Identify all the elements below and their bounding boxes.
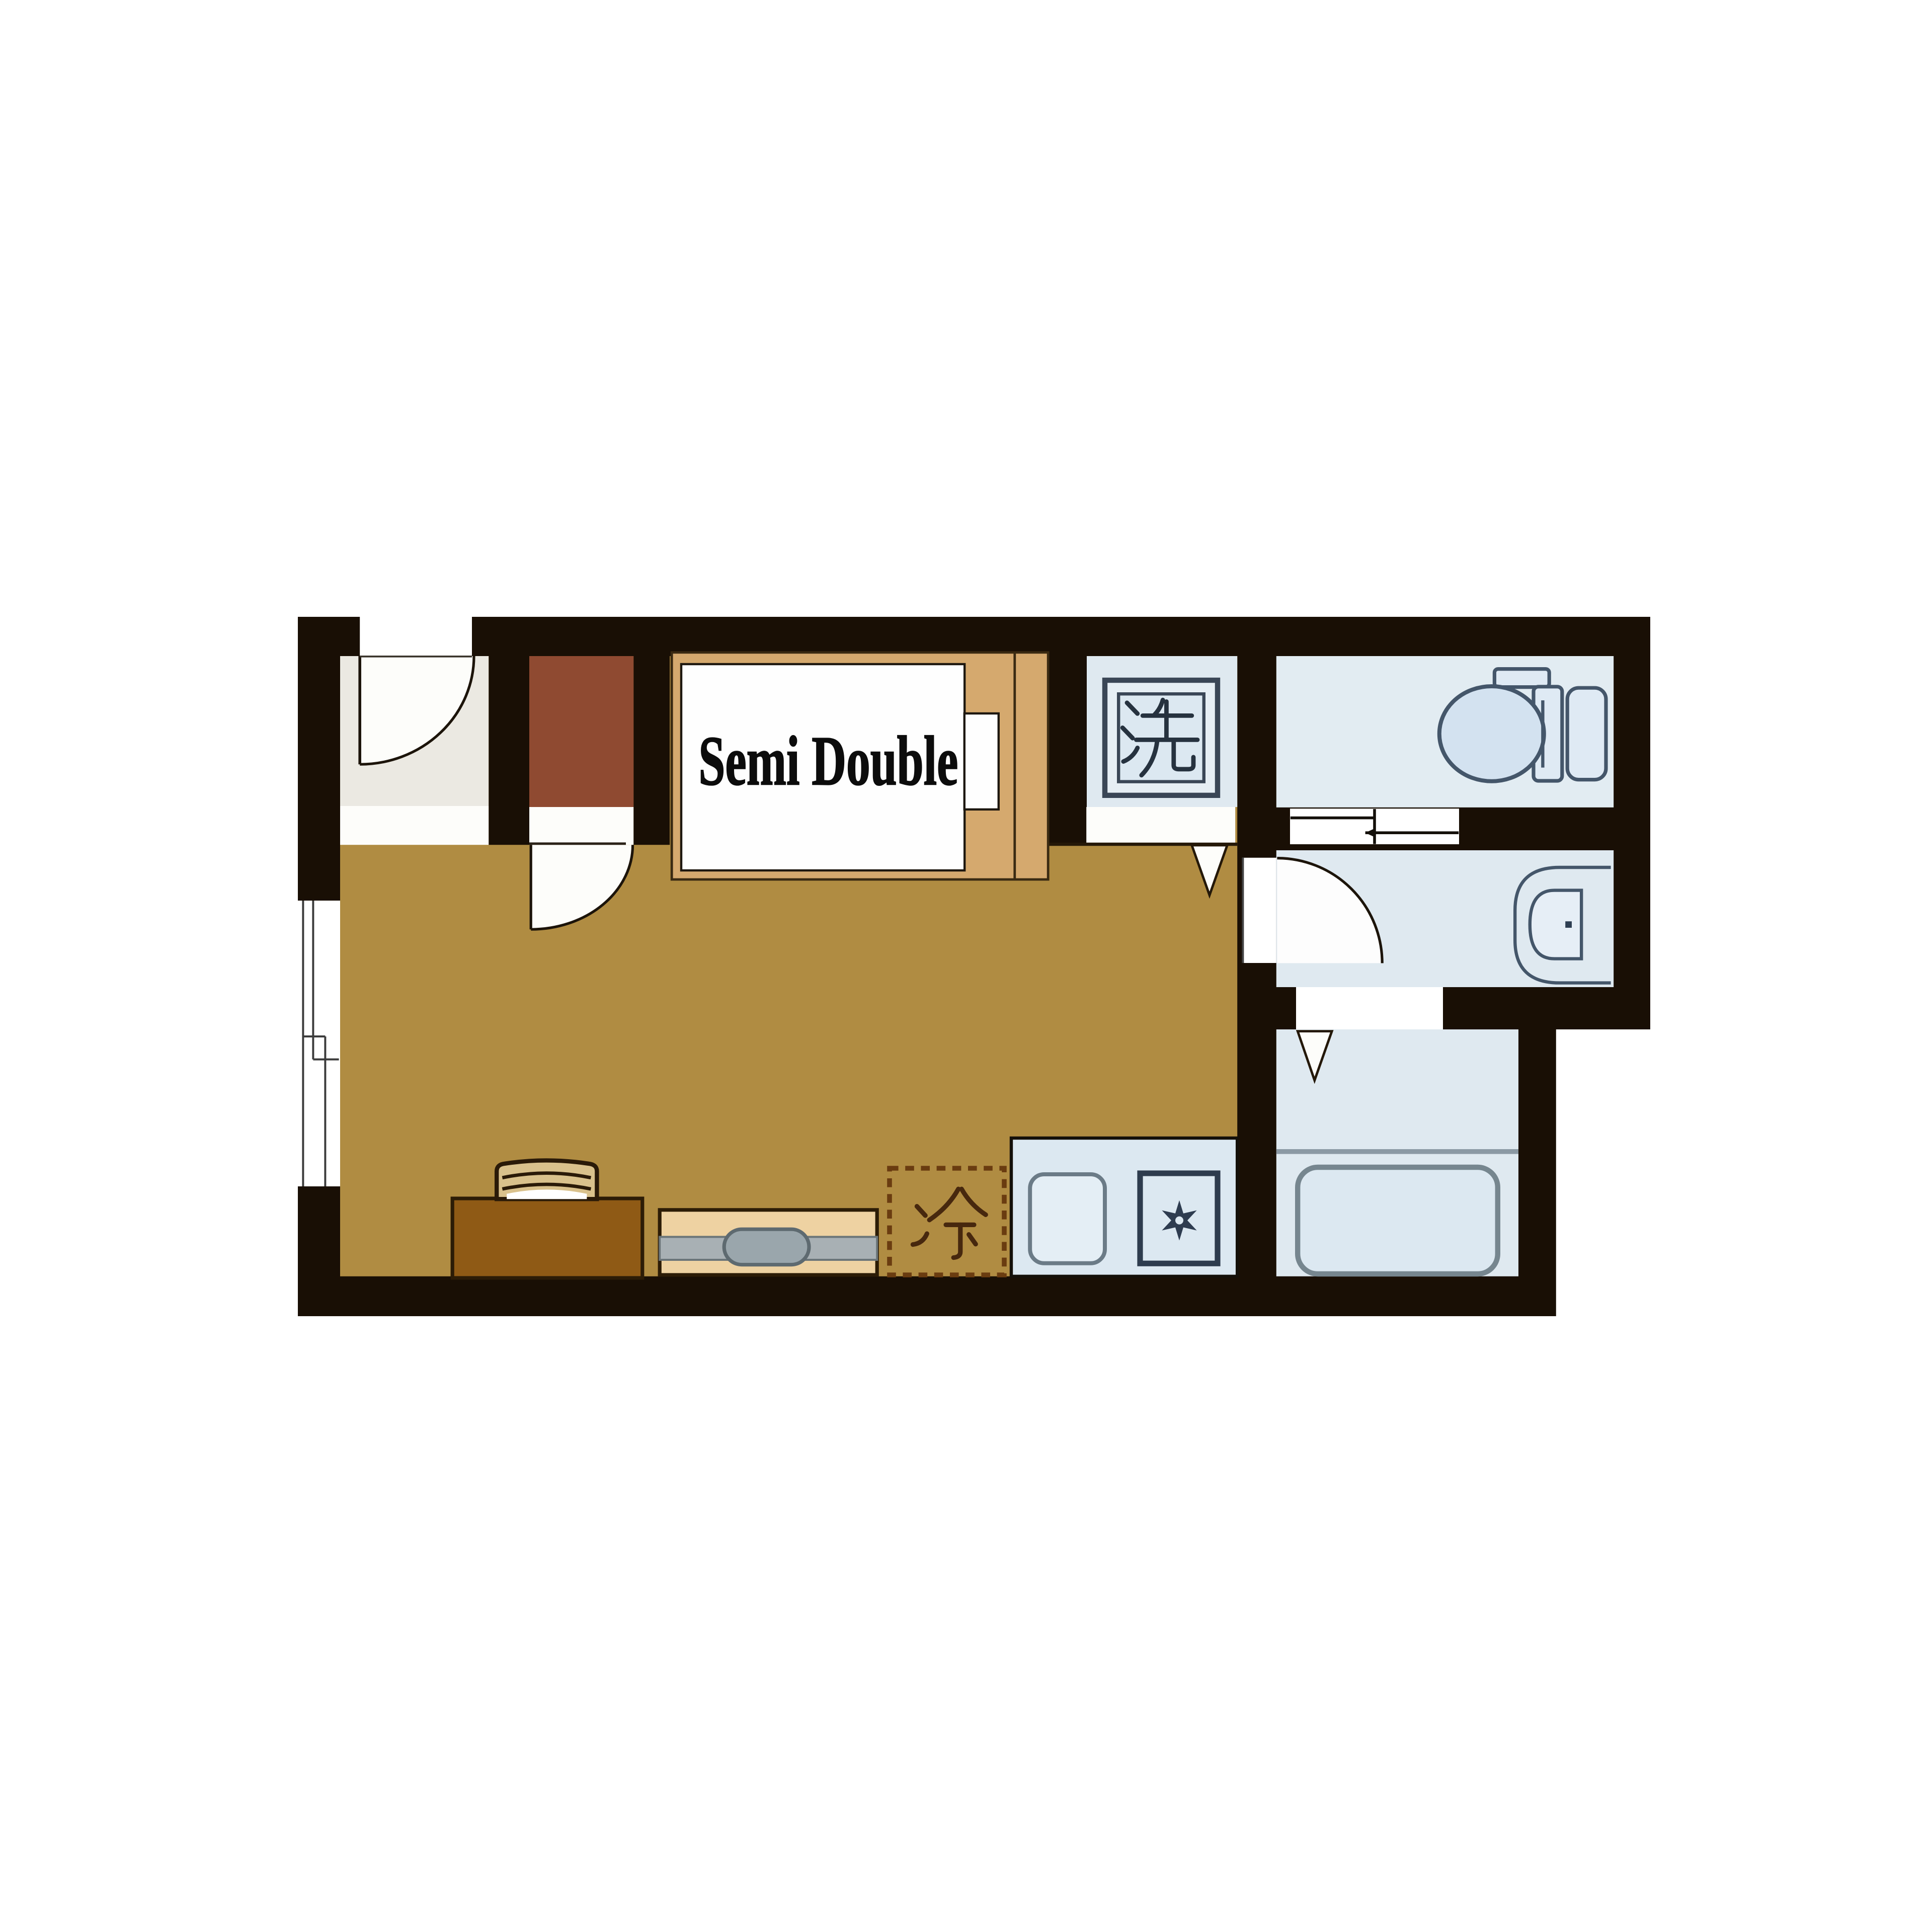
svg-text:Semi Double: Semi Double: [698, 722, 958, 800]
